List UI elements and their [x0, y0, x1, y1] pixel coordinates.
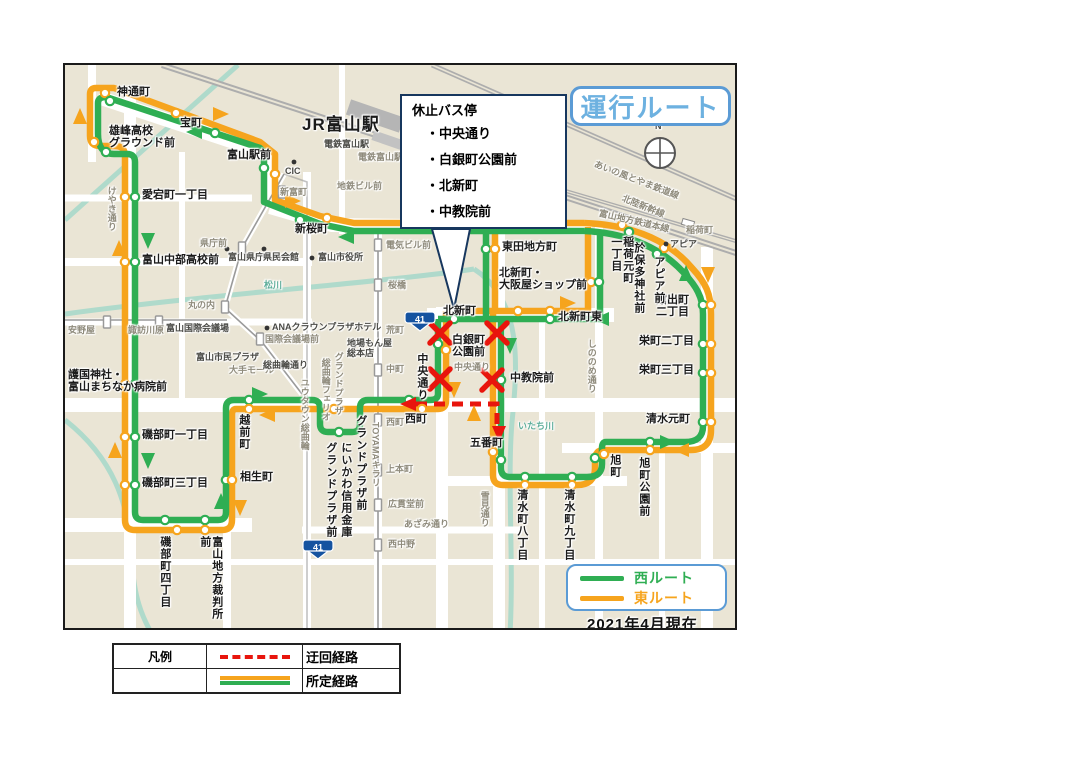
callout-item: ・白銀町公園前	[426, 147, 559, 173]
route-41-shield: 41	[405, 312, 435, 331]
svg-text:41: 41	[313, 543, 323, 553]
bus-stop-marker	[131, 258, 139, 266]
bus-stop-marker	[591, 454, 599, 462]
bus-stop-marker	[296, 216, 304, 224]
route-arrow	[141, 453, 155, 469]
bus-stop-marker	[521, 481, 529, 489]
west-route-line-sample	[580, 576, 624, 581]
tram-stop-marker	[375, 499, 382, 511]
bus-stop-marker	[323, 214, 331, 222]
legend-table-row: 所定経路	[114, 668, 399, 692]
callout-list: ・中央通り ・白銀町公園前 ・北新町 ・中教院前	[426, 121, 559, 225]
legend-table-row: 凡例 迂回経路	[114, 645, 399, 668]
west-route-label: 西ルート	[634, 568, 694, 588]
tram-stop-marker	[375, 364, 382, 376]
suspended-stops-callout: 休止バス停 ・中央通り ・白銀町公園前 ・北新町 ・中教院前	[400, 94, 567, 229]
bus-stop-marker	[442, 346, 450, 354]
callout-item: ・中央通り	[426, 121, 559, 147]
bus-stop-marker	[625, 228, 633, 236]
bus-stop-marker	[418, 405, 426, 413]
legend-table: 凡例 迂回経路 所定経路	[112, 643, 401, 694]
bus-stop-marker	[172, 109, 180, 117]
tram-stop-marker	[104, 316, 111, 328]
tram-stop-marker	[375, 279, 382, 291]
designated-label-cell: 所定経路	[303, 669, 399, 692]
bus-stop-marker	[600, 450, 608, 458]
bus-stop-marker	[646, 446, 654, 454]
tram-stop-marker	[222, 301, 229, 313]
tram-stop-marker	[239, 242, 246, 254]
tram-stop-marker	[375, 464, 382, 476]
bus-stop-marker	[330, 405, 338, 413]
bus-stop-marker	[121, 380, 129, 388]
legend-row-west: 西ルート	[580, 568, 713, 588]
callout-item: ・北新町	[426, 173, 559, 199]
bus-stop-marker	[228, 476, 236, 484]
poi-dot	[352, 344, 357, 349]
bus-stop-marker	[90, 138, 98, 146]
bus-stop-marker	[106, 97, 114, 105]
bus-stop-marker	[595, 278, 603, 286]
bus-stop-marker	[245, 396, 253, 404]
route-arrow	[141, 233, 155, 249]
bus-stop-marker	[121, 481, 129, 489]
tram-stop-marker	[257, 333, 264, 345]
east-route-line-sample	[580, 596, 624, 601]
bus-stop-marker	[211, 129, 219, 137]
page: 4141 神通町宝町雄峰高校 グラウンド前愛宕町一丁目富山中部高校前護国神社・ …	[0, 0, 1079, 763]
poi-dot	[215, 356, 220, 361]
tram-stop-marker	[375, 414, 382, 426]
bus-stop-marker	[131, 193, 139, 201]
route-arrow	[73, 108, 87, 124]
legend-empty-cell	[114, 669, 207, 692]
poi-dot	[664, 242, 669, 247]
callout-title: 休止バス停	[412, 103, 559, 119]
bus-stop-marker	[161, 516, 169, 524]
route-legend: 西ルート 東ルート	[566, 564, 727, 611]
bus-stop-marker	[131, 380, 139, 388]
poi-dot	[265, 326, 270, 331]
legend-header-cell: 凡例	[114, 645, 207, 668]
designated-route-sample	[220, 676, 290, 685]
route-arrow	[213, 107, 229, 121]
compass-icon	[645, 138, 675, 168]
tram-stop-marker	[375, 539, 382, 551]
legend-row-east: 東ルート	[580, 588, 713, 608]
bus-stop-marker	[260, 164, 268, 172]
bus-stop-marker	[491, 245, 499, 253]
bus-stop-marker	[173, 526, 181, 534]
bus-stop-marker	[653, 250, 661, 258]
detour-dashed-sample	[220, 655, 290, 659]
bus-stop-marker	[707, 301, 715, 309]
bus-stop-marker	[121, 258, 129, 266]
detour-label-cell: 迂回経路	[303, 645, 399, 668]
bus-stop-marker	[271, 170, 279, 178]
bus-stop-marker	[546, 315, 554, 323]
bus-stop-marker	[101, 89, 109, 97]
tram-stop-marker	[156, 316, 163, 328]
poi-dot	[200, 327, 205, 332]
bus-stop-marker	[482, 245, 490, 253]
poi-dot	[310, 256, 315, 261]
west-line-sample	[220, 681, 290, 685]
bus-stop-marker	[568, 481, 576, 489]
as-of-date: 2021年4月現在	[587, 613, 698, 630]
bus-stop-marker	[201, 516, 209, 524]
poi-dot	[225, 247, 230, 252]
route-map: 4141 神通町宝町雄峰高校 グラウンド前愛宕町一丁目富山中部高校前護国神社・ …	[63, 63, 737, 630]
callout-item: ・中教院前	[426, 199, 559, 225]
route-arrow	[108, 442, 122, 458]
route-41-shields: 4141	[303, 312, 435, 559]
poi-dot	[262, 247, 267, 252]
bus-stop-marker	[121, 193, 129, 201]
bus-stop-marker	[102, 148, 110, 156]
bus-stop-marker	[245, 405, 253, 413]
bus-stop-marker	[131, 433, 139, 441]
routes-sample-cell	[207, 669, 303, 692]
bus-stop-marker	[131, 481, 139, 489]
svg-text:41: 41	[415, 315, 425, 325]
east-route-label: 東ルート	[634, 588, 694, 608]
bus-stop-marker	[497, 456, 505, 464]
tram-stop-marker	[279, 186, 286, 198]
bus-stop-marker	[707, 340, 715, 348]
tram-stop-marker	[375, 239, 382, 251]
poi-dot	[292, 160, 297, 165]
bus-stop-marker	[707, 369, 715, 377]
bus-stop-marker	[707, 418, 715, 426]
detour-sample-cell	[207, 645, 303, 668]
bus-stop-marker	[121, 433, 129, 441]
bus-stop-marker	[201, 526, 209, 534]
direction-arrows	[73, 107, 715, 516]
bus-stop-marker	[618, 221, 626, 229]
east-line-sample	[220, 676, 290, 680]
bus-stop-marker	[514, 307, 522, 315]
bus-stop-marker	[335, 428, 343, 436]
bus-stop-marker	[489, 448, 497, 456]
map-title: 運行ルート	[570, 86, 731, 126]
